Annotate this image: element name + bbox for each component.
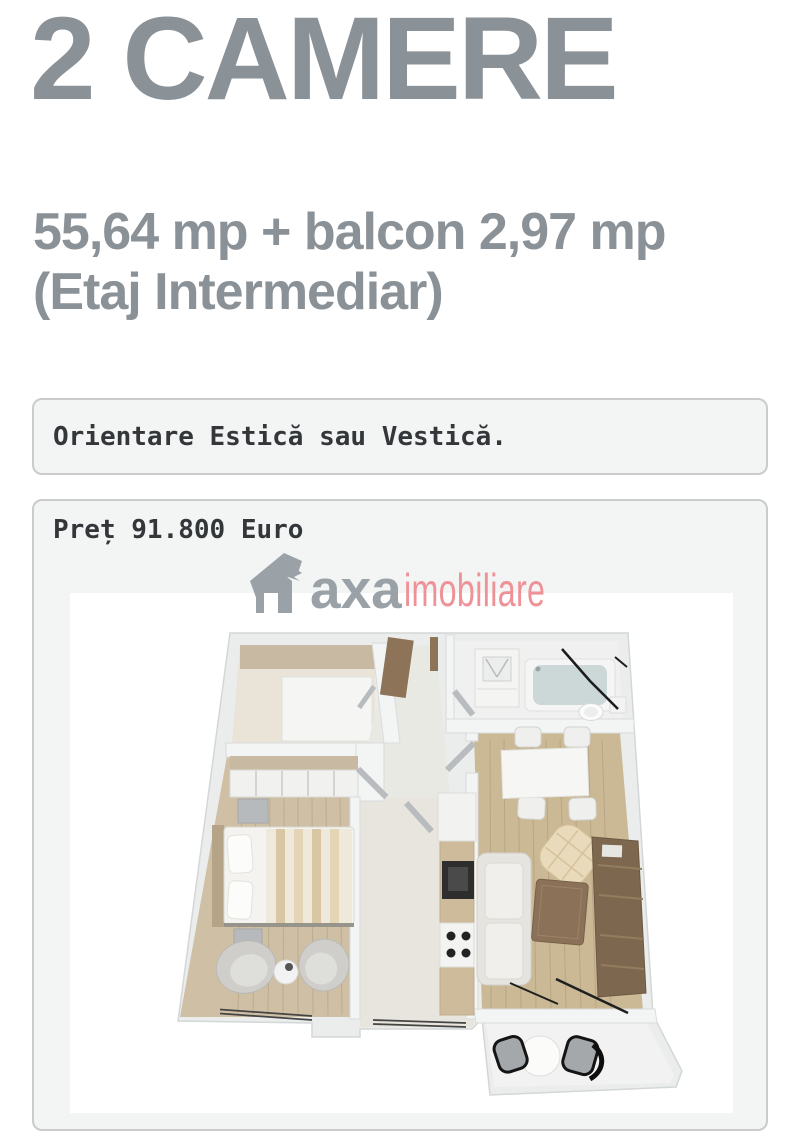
cooktop [440,923,474,967]
sofa [477,853,531,985]
kitchen-counter [438,793,476,1015]
area-text: 55,64 mp + balcon 2,97 mp [33,202,666,262]
bed [212,825,354,927]
wardrobe [230,756,358,797]
tv-unit [592,837,646,997]
side-table [274,960,298,984]
sink-vanity [475,649,519,707]
floor-text: (Etaj Intermediar) [33,262,666,322]
listing-details: 55,64 mp + balcon 2,97 mp (Etaj Intermed… [33,202,666,322]
floor-plan-image[interactable] [70,593,733,1113]
dining-table [501,748,589,799]
toilet [579,704,603,721]
orientation-text: Orientare Estică sau Vestică. [53,422,507,452]
room-closet [232,645,375,743]
listing-page: 2 CAMERE 55,64 mp + balcon 2,97 mp (Etaj… [0,0,800,1138]
floor-plan-svg [70,593,733,1113]
bathtub [525,659,615,711]
orientation-box: Orientare Estică sau Vestică. [32,398,768,475]
coffee-table [531,879,588,945]
nightstand [238,799,268,823]
price-text: Preț 91.800 Euro [53,515,303,545]
price-box: Preț 91.800 Euro [32,499,768,1131]
page-title: 2 CAMERE [30,0,616,128]
